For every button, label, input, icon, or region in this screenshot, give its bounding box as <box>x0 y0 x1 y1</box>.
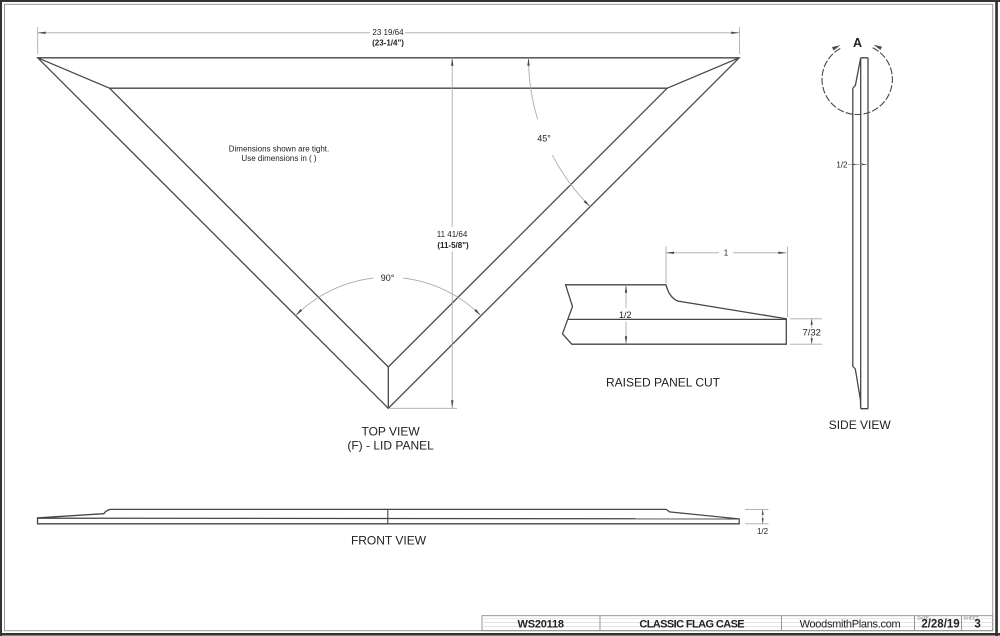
svg-text:1/2: 1/2 <box>757 527 769 536</box>
svg-text:SIDE VIEW: SIDE VIEW <box>829 418 892 432</box>
svg-text:(23-1/4"): (23-1/4") <box>372 38 404 47</box>
svg-text:Dimensions shown are tight.: Dimensions shown are tight. <box>229 144 330 153</box>
svg-text:23 19/64: 23 19/64 <box>372 28 404 37</box>
svg-text:CLASSIC FLAG CASE: CLASSIC FLAG CASE <box>639 618 744 630</box>
svg-text:FRONT VIEW: FRONT VIEW <box>351 534 427 548</box>
svg-text:2/28/19: 2/28/19 <box>921 618 959 630</box>
svg-text:(11-5/8"): (11-5/8") <box>437 241 469 250</box>
svg-text:7/32: 7/32 <box>802 328 821 339</box>
svg-text:WoodsmithPlans.com: WoodsmithPlans.com <box>800 618 901 630</box>
svg-text:A: A <box>853 36 862 50</box>
svg-text:1: 1 <box>724 249 729 258</box>
svg-text:RAISED PANEL CUT: RAISED PANEL CUT <box>606 376 721 390</box>
svg-text:90°: 90° <box>381 273 395 283</box>
svg-text:Use dimensions in ( ): Use dimensions in ( ) <box>241 154 316 163</box>
svg-text:11 41/64: 11 41/64 <box>437 230 468 239</box>
svg-text:45°: 45° <box>537 134 551 144</box>
svg-text:(F) - LID PANEL: (F) - LID PANEL <box>347 438 434 452</box>
svg-text:TOP VIEW: TOP VIEW <box>361 425 420 439</box>
svg-text:WS20118: WS20118 <box>518 618 564 630</box>
svg-text:3: 3 <box>974 618 980 630</box>
svg-text:1/2: 1/2 <box>836 160 848 169</box>
svg-text:1/2: 1/2 <box>619 310 632 320</box>
